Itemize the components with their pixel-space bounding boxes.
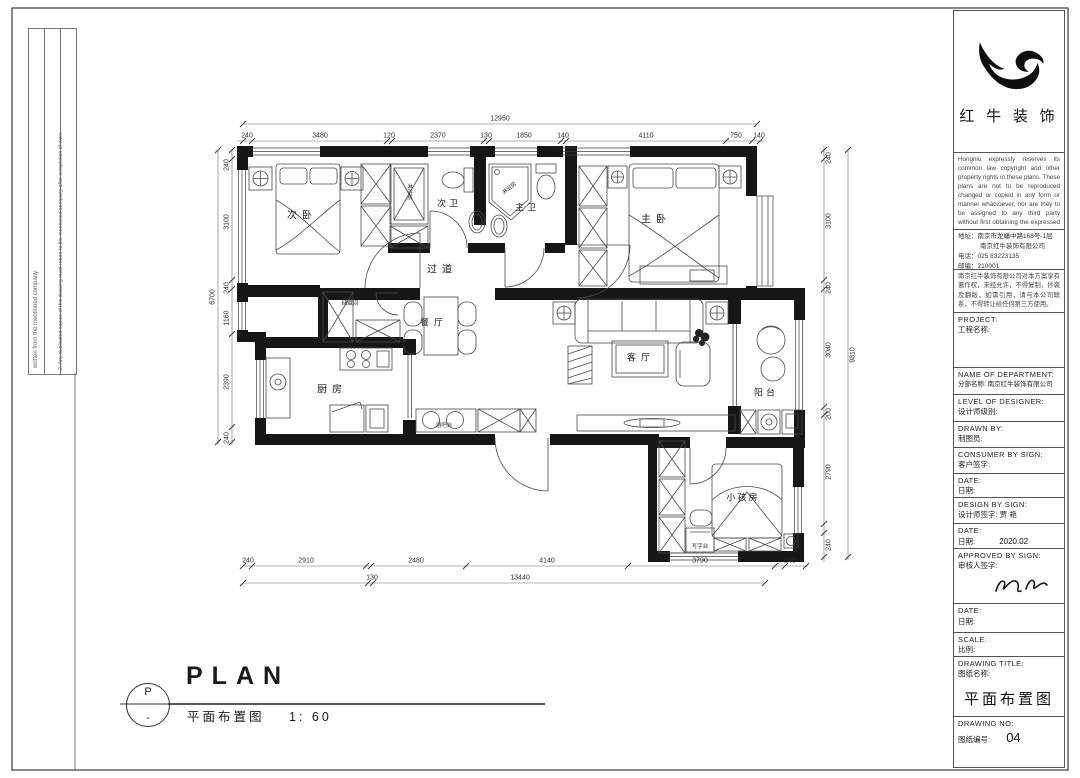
dim-label: 240 [224, 282, 231, 294]
field-label-cn: 日期: [958, 486, 1060, 497]
wardrobe-secondary [361, 164, 391, 246]
dim-label: 240 [826, 282, 833, 294]
field-department: NAME OF DEPARTMENT: 分部名称: 南京红牛装饰有限公司 [954, 368, 1064, 395]
margin-note-1: written from the mentioned company. [33, 270, 39, 368]
dim-left-total: 6700 [210, 289, 217, 305]
dim-label: 240 [224, 432, 231, 444]
field-label-en: DRAWN BY: [958, 424, 1060, 434]
field-drawing-title: DRAWING TITLE: 图纸名称: 平面布置图 [954, 657, 1064, 717]
sink-master [491, 215, 507, 237]
drawing-title-value: 平面布置图 [958, 688, 1060, 709]
room-label-kitchen: 厨房 [317, 381, 347, 396]
bull-logo-icon [966, 37, 1052, 99]
field-approved-sign: APPROVED BY SIGN: 审核人签字: [954, 549, 1064, 605]
drawing-sheet: 次卧 次卫 主卫 主卧 过道 餐厅 客厅 厨房 阳台 小孩房 淋浴房 淋浴房 储… [0, 0, 1080, 778]
room-label-living: 客厅 [627, 351, 655, 364]
dim-label: 2910 [298, 558, 314, 565]
address-line2: 南京红牛装饰有限公司 [958, 242, 1060, 252]
dim-label: 2370 [430, 133, 446, 140]
wardrobe-master [579, 166, 607, 286]
living-rug [568, 346, 592, 384]
room-label-children: 小孩房 [726, 491, 759, 504]
plan-title-rule [120, 698, 550, 710]
dim-label: 200 [826, 408, 833, 420]
dim-label: 130 [480, 133, 492, 140]
tv-cabinet [577, 415, 735, 431]
fixture-label-storage: 储藏间 [342, 299, 359, 307]
field-label-cn: 设计师级别: [958, 407, 1060, 418]
dim-label: 240 [826, 152, 833, 164]
margin-note-2: 2. Any duplicated copies of this drawing… [58, 131, 64, 370]
field-date-1: DATE: 日期: [954, 474, 1064, 498]
field-design-sign: DESIGN BY SIGN: 设计师签字: 贾 艳 [954, 498, 1064, 524]
dim-label: 3100 [826, 213, 833, 229]
copyright-cn-section: 南京红牛装饰有限公司对本方案享有著作权，未经允许，不得复制、抄袭及翻版，如需引用… [954, 270, 1064, 313]
field-label-en: DATE: [958, 606, 1060, 616]
room-label-balcony: 阳台 [754, 386, 778, 399]
field-drawn-by: DRAWN BY: 制图员: [954, 422, 1064, 448]
dim-label: 140 [557, 133, 569, 140]
dim-right-total: 9810 [850, 347, 857, 363]
dim-label: 1160 [224, 310, 231, 325]
field-label-en: DATE: [958, 526, 1060, 536]
dim-label: 3040 [826, 342, 833, 358]
field-label-en: NAME OF DEPARTMENT: [958, 370, 1060, 380]
field-label-cn: 客户签字: [958, 460, 1060, 471]
address-section: 地址：南京市龙蟠中路168号-1层 南京红牛装饰有限公司 电话：025 8322… [954, 230, 1064, 270]
phone: 电话：025 83223135 [958, 252, 1060, 262]
dim-label: 3480 [312, 133, 328, 140]
dim-label: 240 [826, 539, 833, 551]
bed-master [608, 164, 741, 282]
dim-label: 240 [224, 159, 231, 171]
toilet-secondary [442, 168, 473, 192]
floor-plan-canvas [0, 0, 1080, 778]
bench-master [640, 266, 727, 284]
dim-label: 2390 [224, 374, 231, 390]
furniture [249, 164, 802, 553]
bed-children [712, 464, 798, 551]
date-label: 日期: [958, 537, 975, 546]
dim-top-total: 12950 [490, 116, 509, 123]
dim-label: 130 [366, 575, 378, 582]
field-label-cn: 日期: [958, 617, 1060, 628]
postcode: 邮编：210001 [958, 262, 1060, 271]
plan-marker-bottom: - [127, 712, 169, 724]
dim-label: 4110 [638, 133, 653, 140]
dim-label: 240 [241, 133, 253, 140]
dim-label: 13440 [510, 575, 529, 582]
dim-label: 1850 [516, 133, 532, 140]
bar-counter [416, 409, 536, 432]
room-label-dining: 餐厅 [420, 316, 448, 329]
field-label-en: APPROVED BY SIGN: [958, 551, 1060, 561]
field-drawing-no: DRAWING NO: 图纸编号: 04 [954, 717, 1064, 767]
field-label-cn: 分部名称: 南京红牛装饰有限公司 [958, 380, 1060, 389]
copyright-cn-text: 南京红牛装饰有限公司对本方案享有著作权，未经允许，不得复制、抄袭及翻版，如需引用… [958, 272, 1060, 309]
field-label-en: DESIGN BY SIGN: [958, 500, 1060, 510]
copyright-en-text: Hongniu expressly reserves its common la… [958, 155, 1060, 231]
armchair [676, 342, 710, 386]
room-label-hallway: 过道 [427, 261, 457, 276]
title-block: 红 牛 装 饰 Hongniu expressly reserves its c… [953, 10, 1065, 768]
plan-scale: 1: 60 [289, 710, 332, 724]
field-label-cn: 制图员: [958, 434, 1060, 445]
shower-secondary [390, 164, 428, 248]
field-date-3: DATE: 日期: [954, 604, 1064, 633]
field-label-en: LEVEL OF DESIGNER: [958, 397, 1060, 407]
balcony-furniture [740, 326, 802, 434]
plan-title-en: PLAN [186, 662, 290, 691]
drawing-no-label: 图纸编号: [958, 735, 990, 744]
dim-label: 240 [242, 558, 254, 565]
dim-label: 750 [730, 133, 742, 140]
sheet-border [12, 8, 1068, 770]
field-label-en: CONSUMER BY SIGN: [958, 450, 1060, 460]
plan-title-cn-text: 平面布置图 [187, 710, 265, 724]
dim-label: 240 [784, 558, 796, 565]
brand-section: 红 牛 装 饰 [954, 11, 1064, 153]
field-label-cn: 设计师签字: 贾 艳 [958, 510, 1060, 521]
address-line1: 地址：南京市龙蟠中路168号-1层 [958, 232, 1060, 242]
dim-label: 140 [753, 133, 765, 140]
fixture-label-desk: 写字台 [692, 542, 709, 550]
field-label-cn: 工程名称: [958, 325, 1060, 336]
dim-label: 3100 [224, 214, 231, 230]
field-label-en: DRAWING NO: [958, 719, 1060, 729]
field-label-cn: 图纸编号: 04 [958, 729, 1060, 747]
field-label-cn: 日期: 2020.02 [958, 536, 1060, 548]
room-label-bedroom2: 次卧 [287, 207, 317, 222]
plan-marker-top: P [127, 686, 169, 698]
room-label-bath2: 次卫 [437, 197, 461, 210]
fixture-label-shower2: 淋浴房 [405, 184, 413, 201]
field-project: PROJECT: 工程名称: [954, 313, 1064, 368]
field-label-en: SCALE: [958, 635, 1060, 645]
wardrobe-children [659, 441, 685, 553]
field-label-en: DRAWING TITLE: [958, 659, 1060, 669]
plan-title-cn: 平面布置图 1: 60 [187, 706, 332, 725]
field-consumer-sign: CONSUMER BY SIGN: 客户签字: [954, 448, 1064, 474]
field-designer-level: LEVEL OF DESIGNER: 设计师级别: [954, 395, 1064, 422]
field-label-en: PROJECT: [958, 315, 1060, 325]
field-label-cn: 图纸名称: [958, 669, 1060, 680]
room-label-bedroom-master: 主卧 [641, 211, 671, 226]
date-value: 2020.02 [999, 537, 1028, 546]
fixture-label-bar: 酒吧台 [436, 421, 453, 429]
dim-label: 2480 [408, 558, 424, 565]
field-label-cn: 审核人签字: [958, 561, 1060, 572]
dim-label: 3790 [692, 558, 708, 565]
approver-signature-icon [990, 571, 1052, 597]
dim-label: 2790 [826, 464, 833, 480]
toilet-master [536, 164, 556, 199]
drawing-no-value: 04 [1006, 730, 1020, 745]
field-label-en: DATE: [958, 476, 1060, 486]
field-date-2: DATE: 日期: 2020.02 [954, 524, 1064, 549]
field-label-cn: 比例: [958, 645, 1060, 656]
copyright-en-section: Hongniu expressly reserves its common la… [954, 153, 1064, 231]
brand-name: 红 牛 装 饰 [959, 105, 1058, 126]
field-scale: SCALE: 比例: [954, 633, 1064, 657]
room-label-bath-master: 主卫 [515, 201, 539, 214]
dim-label: 120 [383, 133, 395, 140]
dim-label: 4140 [539, 558, 555, 565]
